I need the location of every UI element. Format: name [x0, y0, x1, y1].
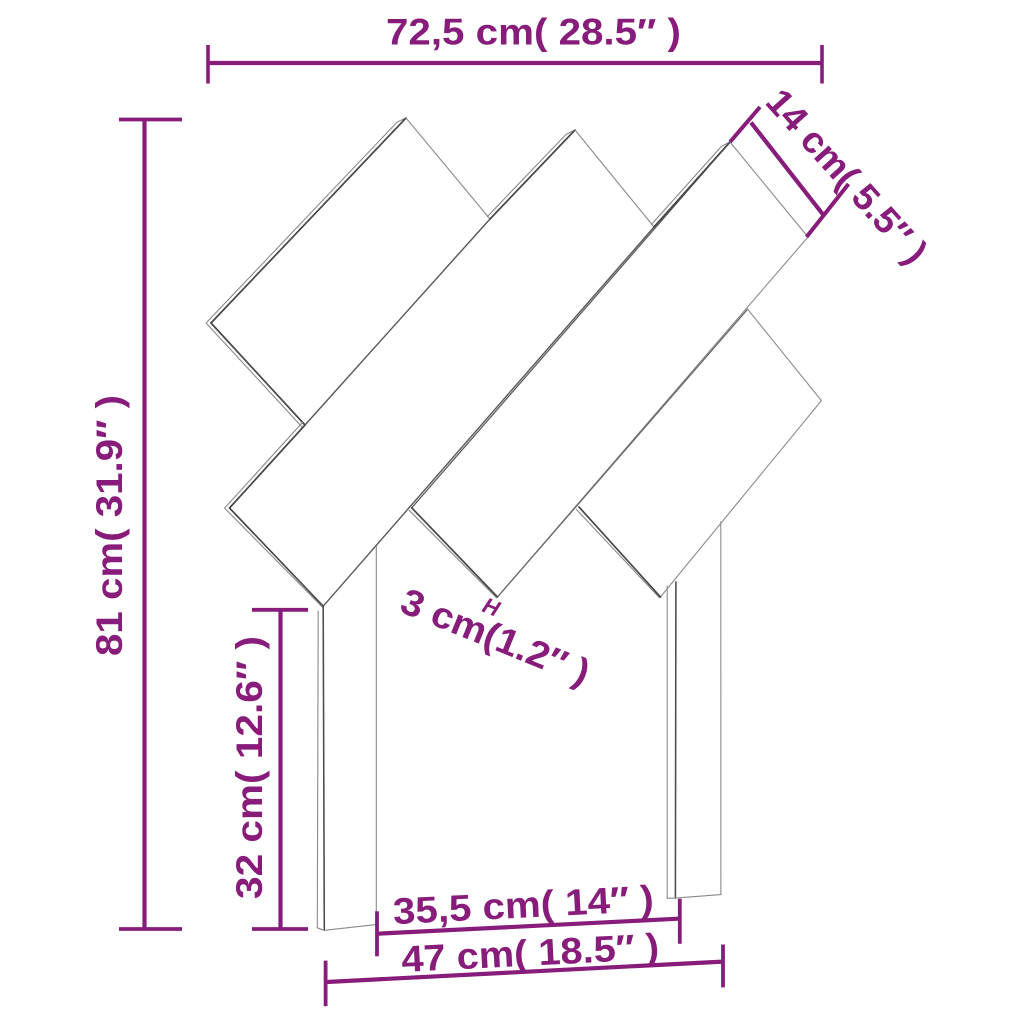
- svg-text:81 cm( 31.9″ ): 81 cm( 31.9″ ): [89, 395, 130, 656]
- svg-text:32 cm( 12.6″ ): 32 cm( 12.6″ ): [229, 636, 270, 899]
- svg-text:72,5 cm( 28.5″ ): 72,5 cm( 28.5″ ): [386, 12, 681, 53]
